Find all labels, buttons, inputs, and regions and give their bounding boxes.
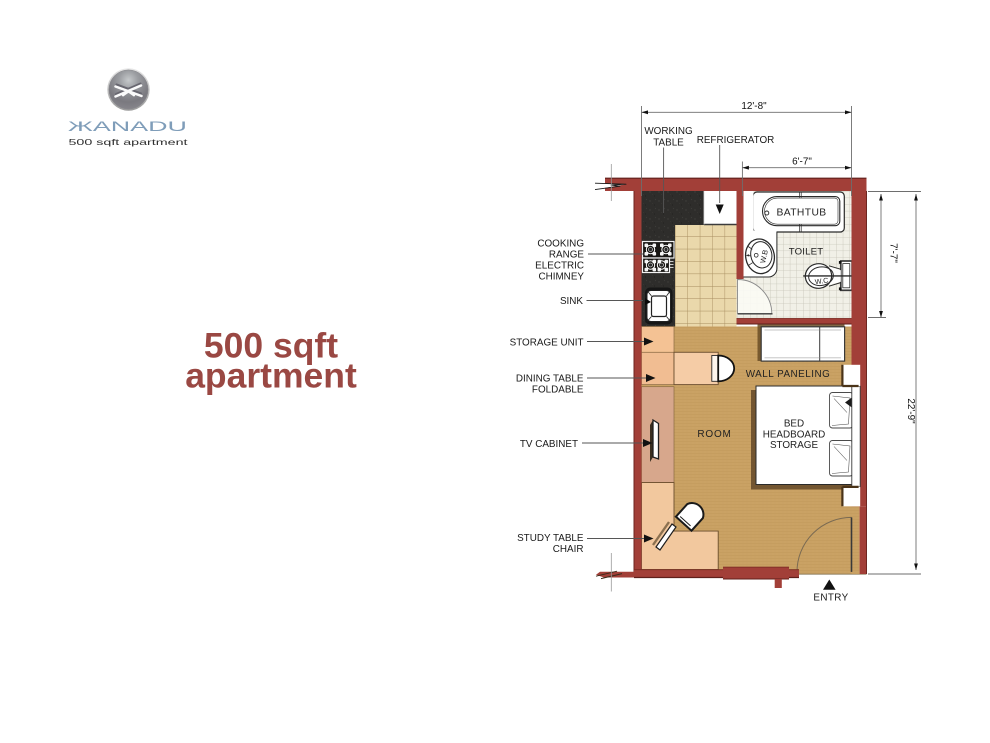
svg-text:W.C: W.C [814, 276, 829, 287]
svg-text:CHAIR: CHAIR [553, 544, 584, 555]
svg-text:DINING TABLE: DINING TABLE [516, 373, 584, 384]
svg-text:CHIMNEY: CHIMNEY [538, 271, 584, 282]
svg-text:BED: BED [784, 419, 804, 430]
svg-text:ROOM: ROOM [697, 429, 731, 440]
svg-text:WORKING: WORKING [644, 126, 692, 137]
svg-text:ENTRY: ENTRY [813, 593, 848, 604]
svg-text:WALL PANELING: WALL PANELING [746, 369, 831, 380]
svg-text:apartment: apartment [185, 356, 357, 396]
svg-text:STORAGE: STORAGE [770, 440, 819, 451]
svg-text:HEADBOARD: HEADBOARD [763, 429, 826, 440]
svg-text:FOLDABLE: FOLDABLE [532, 384, 584, 395]
svg-text:12'-8": 12'-8" [741, 101, 767, 112]
svg-text:RANGE: RANGE [549, 249, 585, 260]
svg-text:22'-9": 22'-9" [905, 398, 916, 424]
svg-text:TOILET: TOILET [789, 247, 824, 258]
svg-text:7'-7": 7'-7" [888, 243, 899, 263]
svg-text:STORAGE UNIT: STORAGE UNIT [510, 337, 584, 348]
svg-text:TV CABINET: TV CABINET [520, 439, 578, 450]
svg-text:TABLE: TABLE [653, 137, 684, 148]
svg-text:ELECTRIC: ELECTRIC [535, 260, 584, 271]
svg-text:6'-7": 6'-7" [792, 156, 812, 167]
svg-text:SINK: SINK [560, 296, 583, 307]
svg-text:COOKING: COOKING [537, 238, 584, 249]
svg-text:BATHTUB: BATHTUB [776, 208, 826, 219]
svg-text:ЖANADU: ЖANADU [68, 119, 187, 134]
svg-text:500 sqft apartment: 500 sqft apartment [69, 137, 189, 147]
svg-text:REFRIGERATOR: REFRIGERATOR [697, 135, 775, 146]
svg-text:STUDY TABLE: STUDY TABLE [517, 533, 584, 544]
